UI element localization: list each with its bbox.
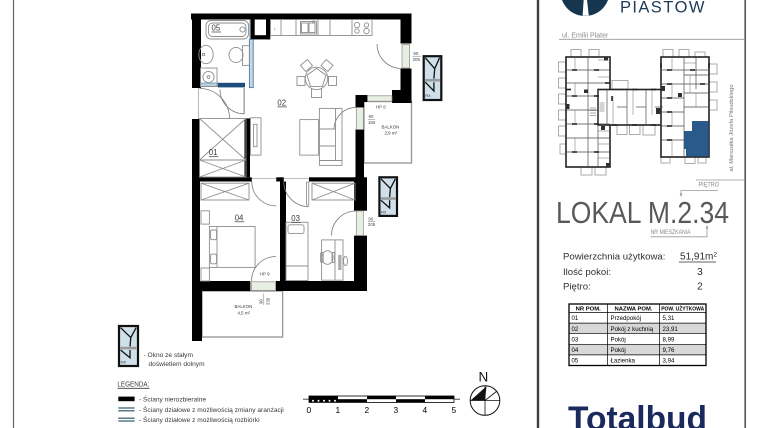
svg-text:205: 205 [413,57,421,62]
svg-text:NAZWA POM.: NAZWA POM. [615,307,653,313]
svg-text:doświetlem dolnym: doświetlem dolnym [149,361,206,368]
svg-text:3: 3 [697,267,703,278]
svg-text:150: 150 [368,120,376,125]
svg-text:N: N [479,370,489,385]
svg-text:NR MIESZKANIA: NR MIESZKANIA [651,230,691,236]
svg-text:205: 205 [368,222,376,227]
svg-text:LOKAL M.2.34: LOKAL M.2.34 [556,195,729,230]
svg-text:- Ściany nierozbieralne: - Ściany nierozbieralne [139,395,206,404]
svg-text:01: 01 [209,148,218,157]
svg-text:POW. UŻYTKOWA: POW. UŻYTKOWA [661,306,704,313]
svg-text:5,31: 5,31 [663,315,675,322]
svg-text:Pokój: Pokój [611,347,626,354]
svg-text:51,91m2: 51,91m2 [680,252,717,263]
svg-text:235: 235 [266,297,271,305]
svg-text:ul. Emilii Plater: ul. Emilii Plater [562,33,609,40]
svg-text:Powierzchnia użytkowa:: Powierzchnia użytkowa: [563,252,665,263]
svg-text:- Ściany działowe z możliwości: - Ściany działowe z możliwością zmiany a… [139,405,284,414]
svg-text:PIĘTRO: PIĘTRO [699,183,720,189]
svg-text:90: 90 [259,299,264,304]
svg-text:05: 05 [572,358,579,365]
svg-text:2,9 m²: 2,9 m² [385,131,398,136]
svg-text:0: 0 [307,405,312,415]
svg-text:Piętro:: Piętro: [563,282,591,293]
svg-text:Totalbud: Totalbud [568,400,707,428]
svg-text:NR POM.: NR POM. [576,307,602,313]
svg-text:Ilość pokoi:: Ilość pokoi: [563,267,611,278]
svg-text:03: 03 [572,336,579,343]
svg-text:8,99: 8,99 [663,336,675,343]
svg-text:3: 3 [394,405,399,415]
svg-text:BALKON: BALKON [235,304,253,309]
svg-text:2: 2 [365,405,370,415]
svg-text:5: 5 [452,405,457,415]
svg-text:- Okno ze stałym: - Okno ze stałym [144,352,194,359]
svg-text:- Ściany działowe z możliwości: - Ściany działowe z możliwością rozbiórk… [139,415,260,424]
svg-text:BALKON: BALKON [382,125,400,130]
svg-text:L: L [274,27,276,31]
svg-text:PIASTÓW: PIASTÓW [620,0,706,17]
svg-text:4: 4 [423,405,428,415]
svg-text:FIX: FIX [425,94,431,98]
svg-text:FIX: FIX [121,360,127,364]
svg-text:90: 90 [413,51,418,56]
svg-text:90: 90 [369,114,374,119]
svg-text:Łazienka: Łazienka [611,358,636,365]
svg-text:23,91: 23,91 [663,326,679,333]
svg-text:FIX: FIX [381,210,387,214]
svg-text:2: 2 [697,282,703,293]
svg-text:al. Marszałka Józefa Piłsudski: al. Marszałka Józefa Piłsudskiego [729,85,735,172]
svg-text:01: 01 [572,315,579,322]
svg-text:Pokój z kuchnią: Pokój z kuchnią [611,326,654,333]
svg-text:HP 9: HP 9 [260,272,270,277]
svg-text:3,94: 3,94 [663,358,675,365]
svg-text:90: 90 [368,217,373,222]
svg-text:Przedpokój: Przedpokój [611,315,642,322]
svg-text:LEGENDA:: LEGENDA: [117,380,149,389]
svg-text:Pokój: Pokój [611,336,626,343]
svg-text:9,76: 9,76 [663,347,675,354]
svg-text:04: 04 [572,347,579,354]
svg-text:HP 8: HP 8 [376,105,386,110]
svg-text:05: 05 [212,24,221,33]
svg-text:4,5 m²: 4,5 m² [238,311,251,316]
svg-text:03: 03 [291,214,300,223]
svg-text:02: 02 [277,98,286,107]
svg-text:1: 1 [336,405,341,415]
svg-text:04: 04 [235,213,244,222]
svg-text:02: 02 [572,326,579,333]
